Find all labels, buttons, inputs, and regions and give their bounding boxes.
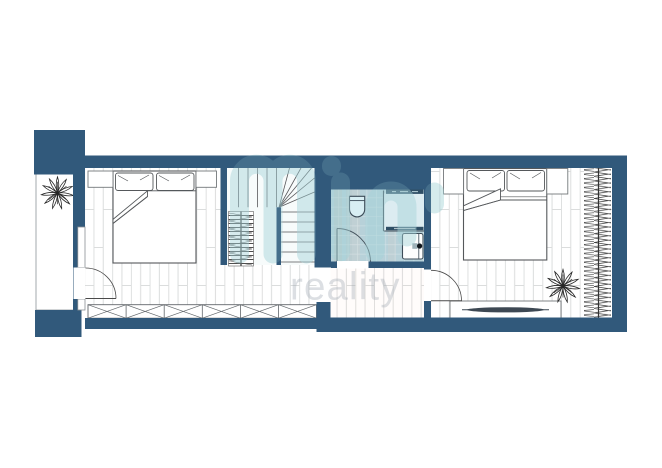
svg-text:reality: reality — [290, 266, 400, 309]
